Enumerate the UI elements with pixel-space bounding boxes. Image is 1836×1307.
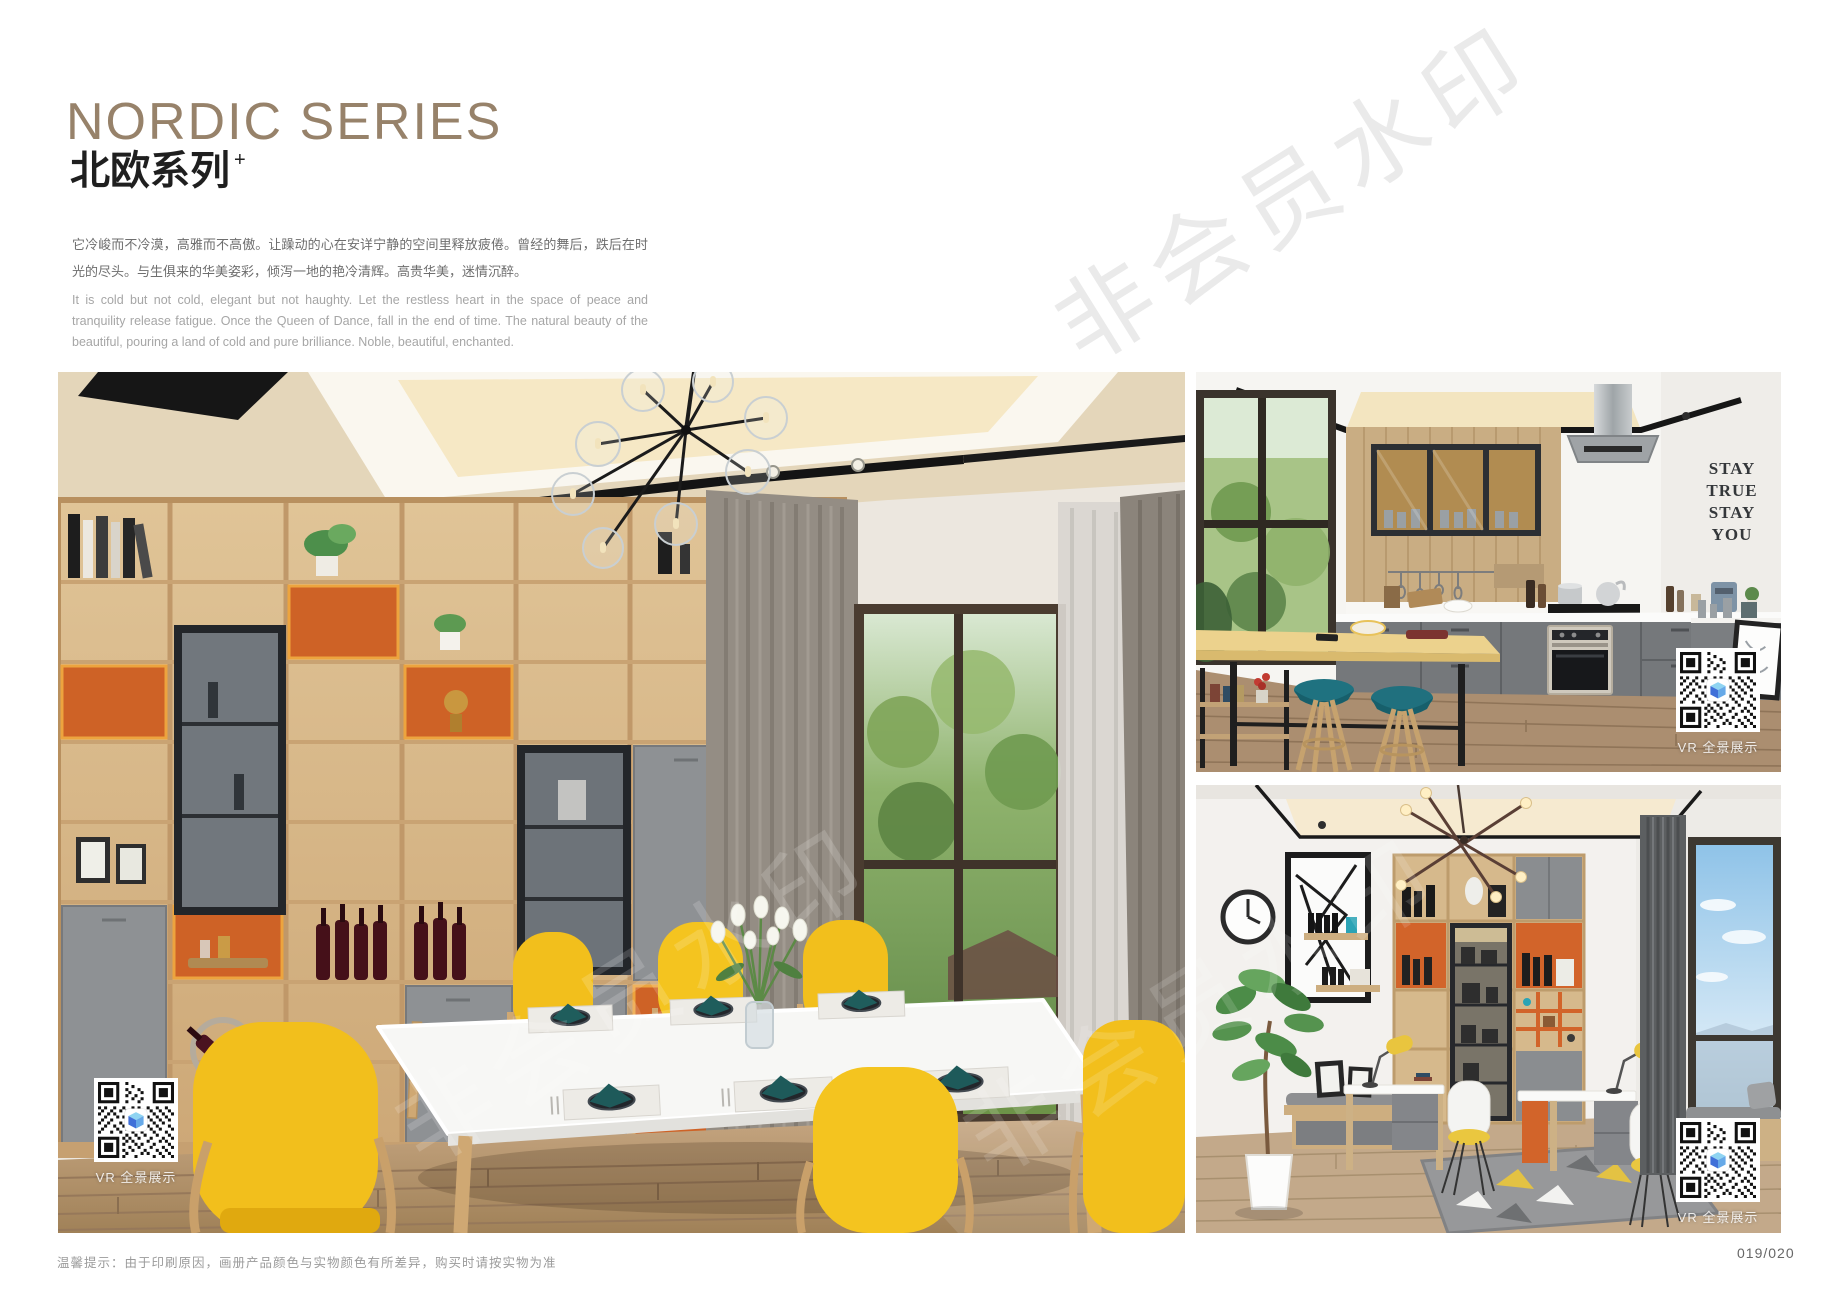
bookcase: [1394, 855, 1584, 1123]
subtitle-text: 北欧系列: [70, 149, 230, 193]
glass-upper-cabinet: [1371, 444, 1541, 536]
wall-clock: [1223, 892, 1273, 942]
qr-label: VR 全景展示: [1676, 1207, 1760, 1226]
page-subtitle: 北欧系列+: [70, 150, 246, 191]
subtitle-plus: +: [234, 149, 246, 171]
qr-badge-study: VR 全景展示: [1676, 1118, 1760, 1226]
page-number: 019/020: [1737, 1245, 1795, 1261]
footer-note: 温馨提示：由于印刷原因，画册产品颜色与实物颜色有所差异，购买时请按实物为准: [57, 1252, 557, 1271]
wall-decor-text: STAY TRUE STAY YOU: [1700, 458, 1764, 546]
left-window: [1196, 390, 1336, 665]
qr-label: VR 全景展示: [94, 1167, 178, 1186]
qr-code: [94, 1078, 178, 1162]
description-en: It is cold but not cold, elegant but not…: [72, 290, 648, 353]
qr-badge-kitchen: VR 全景展示: [1676, 648, 1760, 756]
qr-code: [1676, 648, 1760, 732]
dining-room-photo: [58, 372, 1185, 1233]
qr-label: VR 全景展示: [1676, 737, 1760, 756]
spice-rack: [1494, 564, 1544, 588]
window: [1688, 837, 1781, 1117]
qr-code: [1676, 1118, 1760, 1202]
watermark: 非会员水印: [1024, 0, 1556, 390]
page-title: NORDIC SERIES: [66, 96, 502, 148]
cubby-grid: [1516, 992, 1582, 1047]
description-zh: 它冷峻而不冷漠，高雅而不高傲。让躁动的心在安详宁静的空间里释放疲倦。曾经的舞后，…: [72, 231, 648, 285]
qr-badge-dining: VR 全景展示: [94, 1078, 178, 1186]
catalog-page: NORDIC SERIES 北欧系列+ 它冷峻而不冷漠，高雅而不高傲。让躁动的心…: [0, 0, 1836, 1307]
oven: [1548, 626, 1612, 694]
